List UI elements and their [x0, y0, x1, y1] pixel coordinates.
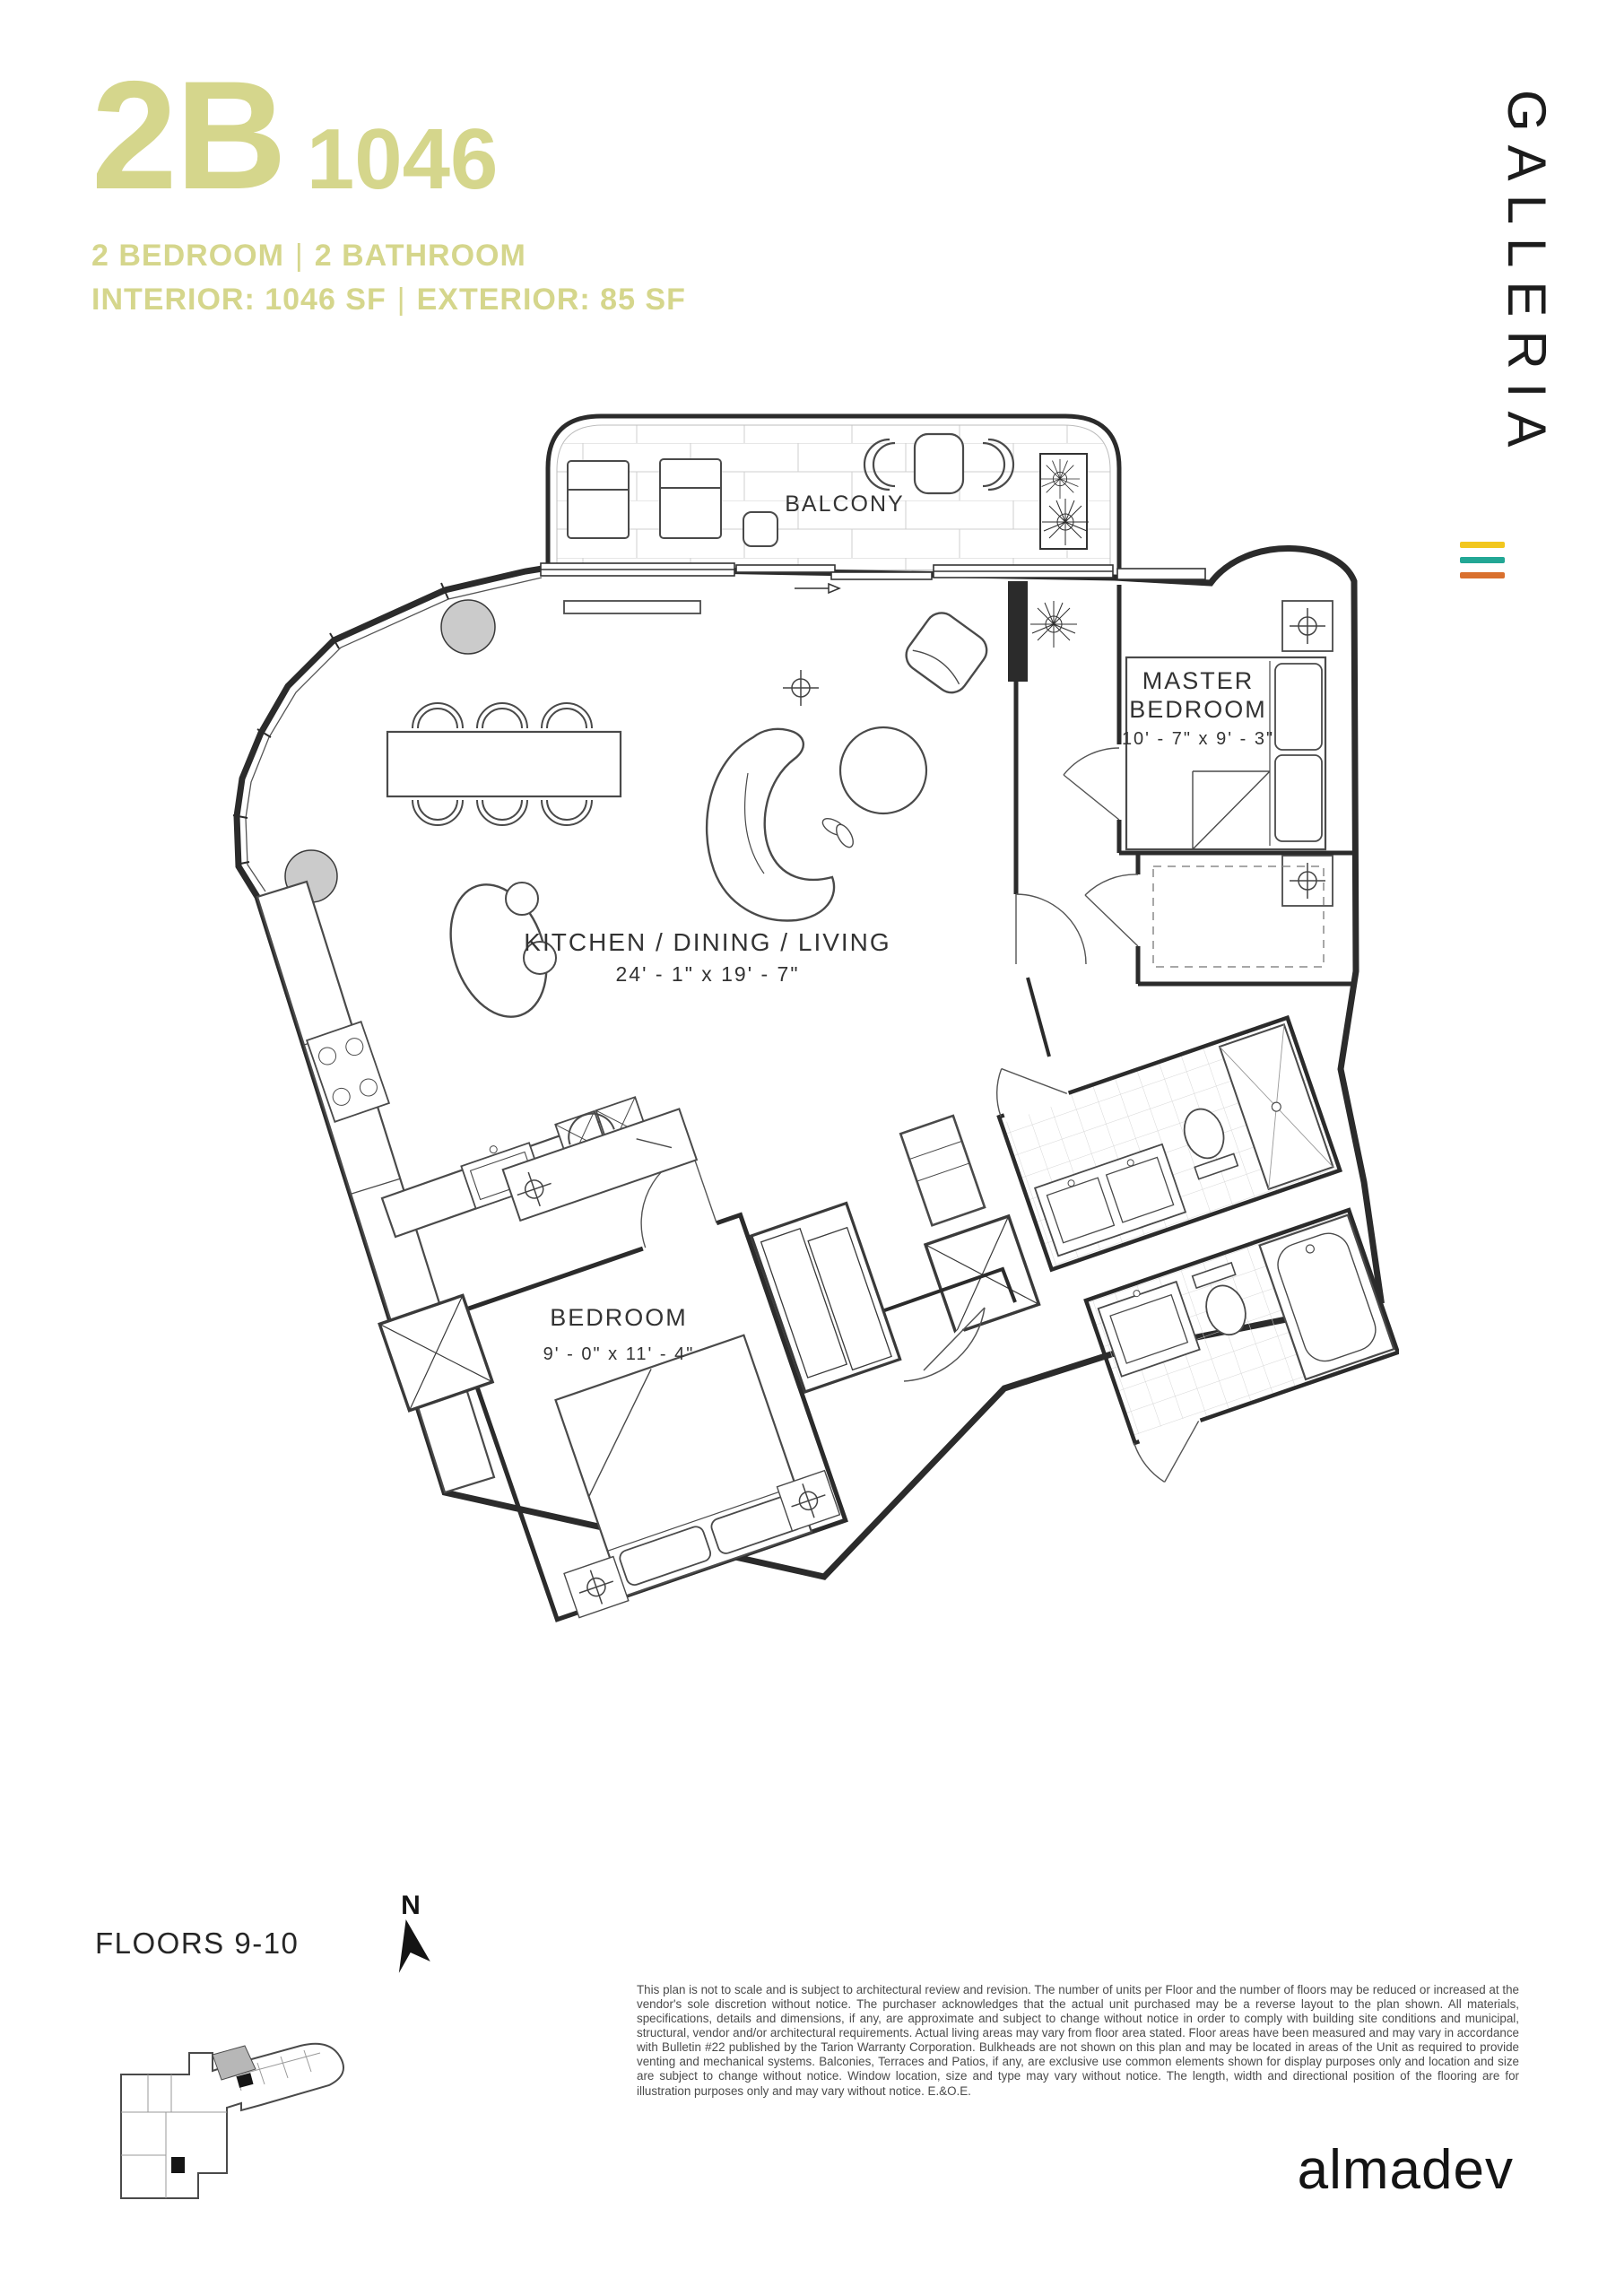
- living-dims: 24' - 1" x 19' - 7": [615, 962, 799, 986]
- slider-arrow-icon: [795, 584, 839, 593]
- dining-set: [387, 703, 621, 825]
- separator: |: [387, 283, 417, 317]
- master-bedroom-label-1: MASTER: [1142, 667, 1255, 694]
- brand-logo: GALLERIA: [1417, 72, 1560, 646]
- bedroom-dims: 9' - 0" x 11' - 4": [543, 1344, 695, 1364]
- unit-number: 1046: [307, 121, 499, 198]
- page-title: 2B 1046: [91, 70, 686, 203]
- plant-icon: [1030, 601, 1077, 648]
- master-bedroom-dims: 10' - 7" x 9' - 3": [1122, 729, 1274, 749]
- header: 2B 1046 2 BEDROOM|2 BATHROOM INTERIOR: 1…: [91, 70, 686, 317]
- north-arrow: N: [378, 1883, 450, 1978]
- coffee-table: [840, 727, 926, 813]
- window-bench: [564, 601, 700, 613]
- bedroom-count: 2 BEDROOM: [91, 239, 284, 273]
- linen-closet: [900, 1116, 985, 1225]
- floors-label: FLOORS 9-10: [95, 1926, 299, 1961]
- balcony-planter: [1040, 454, 1089, 549]
- area-line: INTERIOR: 1046 SF|EXTERIOR: 85 SF: [91, 283, 686, 317]
- balcony-label: BALCONY: [785, 491, 904, 517]
- keyplan: [85, 2022, 390, 2229]
- master-bedroom-label-2: BEDROOM: [1129, 696, 1267, 723]
- floor-plan: BALCONY: [206, 386, 1399, 1695]
- keyplan-core: [171, 2157, 185, 2173]
- north-arrow-icon: [387, 1917, 430, 1973]
- armchair: [900, 606, 994, 699]
- balcony: BALCONY: [548, 416, 1119, 572]
- north-label: N: [401, 1891, 421, 1920]
- bed-bath-line: 2 BEDROOM|2 BATHROOM: [91, 239, 686, 274]
- bathrooms: [880, 975, 1399, 1530]
- master-bedroom: MASTER BEDROOM 10' - 7" x 9' - 3": [1008, 581, 1356, 964]
- developer-logo: almadev: [1298, 2138, 1514, 2202]
- separator: |: [284, 239, 315, 273]
- brand-stripe-yellow: [1460, 542, 1505, 548]
- sliding-closet: [751, 1203, 900, 1391]
- bedroom-label: BEDROOM: [550, 1304, 688, 1331]
- bathroom-count: 2 BATHROOM: [315, 239, 526, 273]
- brand-stripe-teal: [1460, 557, 1505, 563]
- exterior-area: EXTERIOR: 85 SF: [417, 283, 686, 317]
- main-bathroom: [1085, 1210, 1399, 1487]
- disclaimer-text: This plan is not to scale and is subject…: [637, 1983, 1519, 2099]
- column: [441, 600, 495, 654]
- brand-logo-text: GALLERIA: [1497, 90, 1557, 460]
- unit-type: 2B: [91, 70, 285, 203]
- bed: [556, 1335, 812, 1597]
- stove: [307, 1022, 389, 1122]
- interior-area: INTERIOR: 1046 SF: [91, 283, 387, 317]
- brand-stripe-orange: [1460, 572, 1505, 578]
- ceiling-light-icon: [783, 670, 819, 706]
- sofa: [707, 729, 856, 921]
- living-label: KITCHEN / DINING / LIVING: [524, 928, 890, 956]
